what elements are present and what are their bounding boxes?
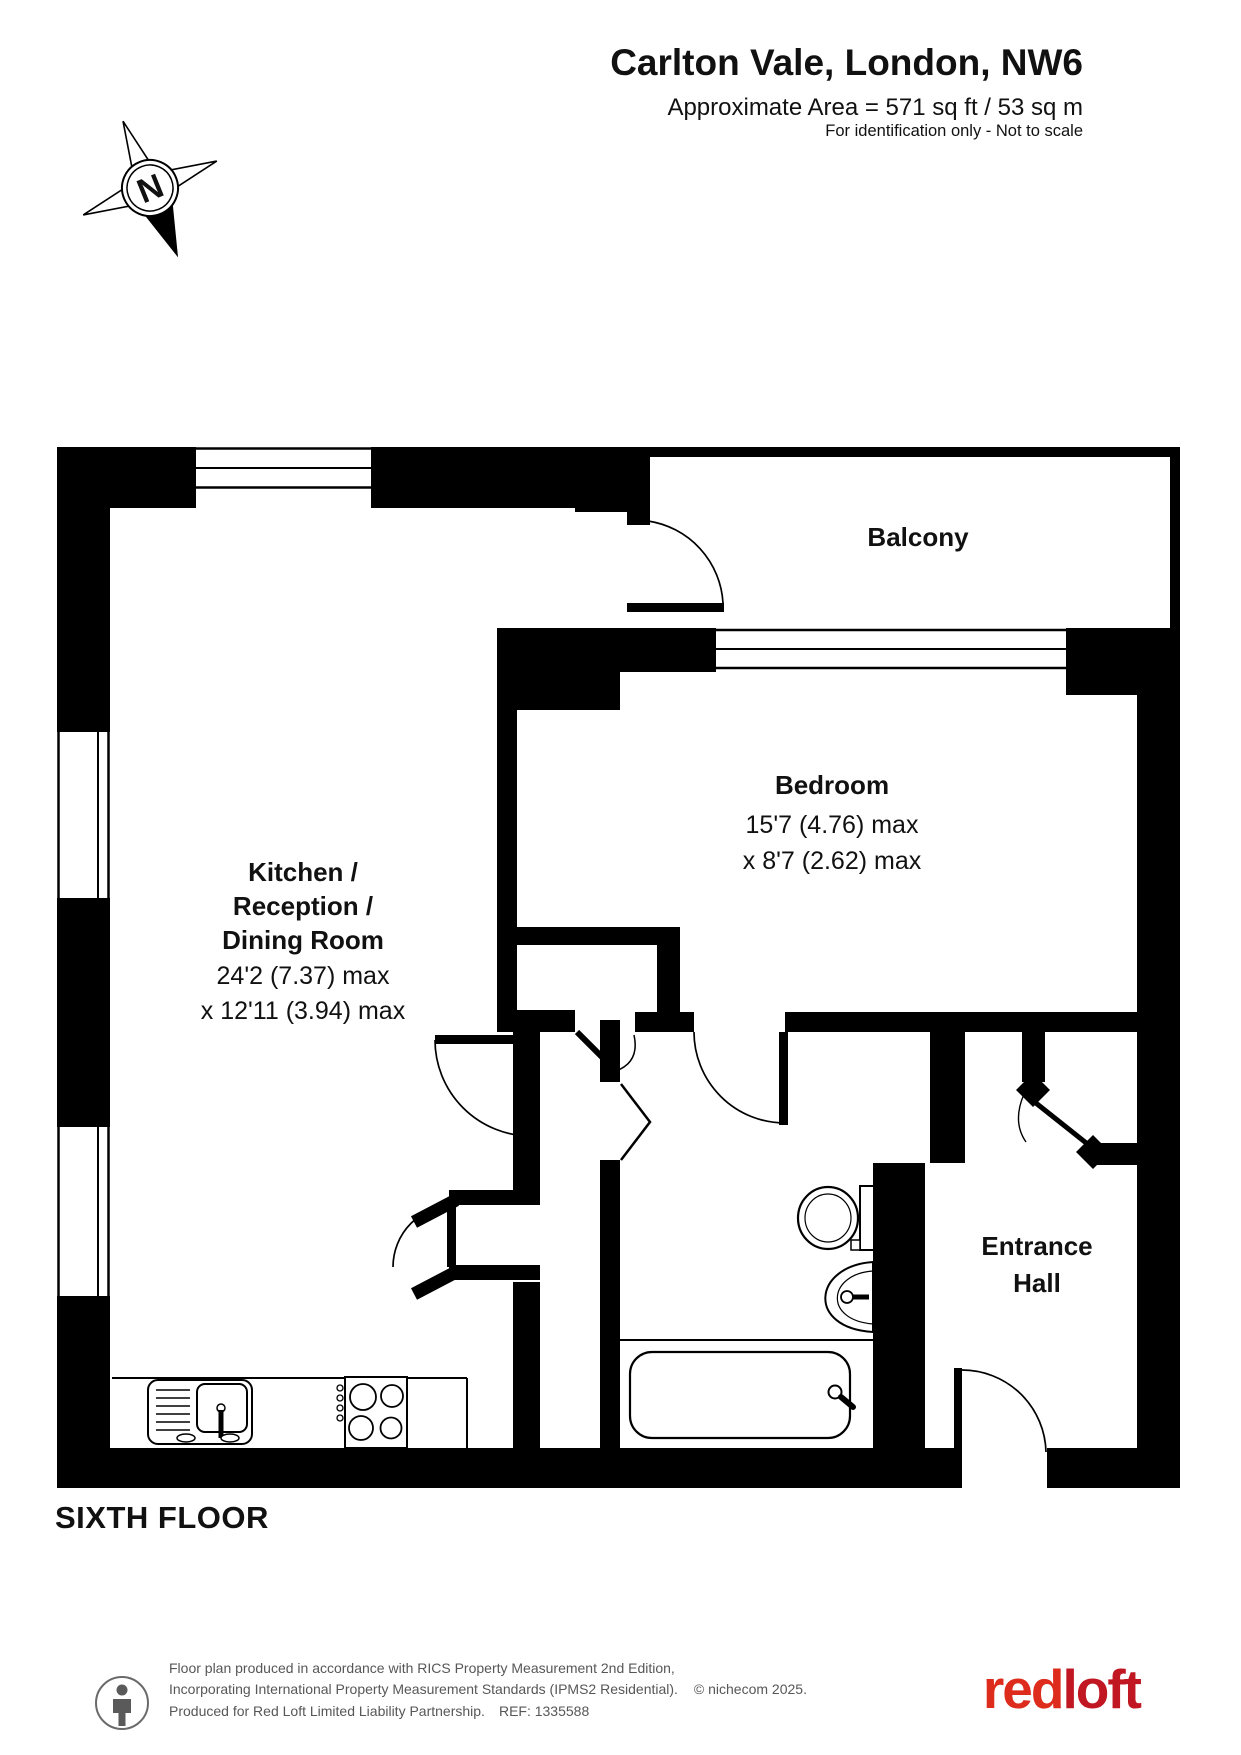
floor-name-label: SIXTH FLOOR	[55, 1500, 269, 1536]
wash-basin	[825, 1262, 873, 1332]
bedroom-dimension-1: 15'7 (4.76) max	[746, 811, 919, 839]
entrance-door	[954, 1368, 1046, 1452]
floor-plan: N	[0, 0, 1241, 1755]
footer-line-3: Produced for Red Loft Limited Liability …	[169, 1701, 807, 1722]
balcony-label: Balcony	[867, 522, 969, 552]
window-left-upper	[57, 730, 110, 900]
window-bedroom-balcony	[716, 628, 1066, 672]
entrance-hall-label-line2: Hall	[1013, 1268, 1061, 1298]
hob	[337, 1377, 407, 1448]
kitchen-dimension-2: x 12'11 (3.94) max	[201, 997, 406, 1025]
window-top	[196, 447, 371, 508]
footer-line-1: Floor plan produced in accordance with R…	[169, 1658, 807, 1679]
balcony-door	[627, 521, 724, 612]
footer-disclaimer: Floor plan produced in accordance with R…	[169, 1658, 807, 1722]
kitchen-label-line1: Kitchen /	[248, 857, 358, 887]
bathtub	[620, 1340, 873, 1438]
kitchen-sink	[148, 1380, 252, 1444]
redloft-logo: redloft	[983, 1657, 1140, 1721]
compass-north-arrow: N	[56, 94, 243, 281]
person-icon	[94, 1674, 152, 1734]
bedroom-label: Bedroom	[775, 770, 889, 800]
footer-line-2: Incorporating International Property Mea…	[169, 1679, 807, 1700]
fixtures	[112, 1186, 874, 1448]
bedroom-dimension-2: x 8'7 (2.62) max	[743, 847, 922, 875]
kitchen-dimension-1: 24'2 (7.37) max	[217, 962, 390, 990]
bathroom-door	[694, 1032, 788, 1125]
logo-loft: loft	[1062, 1658, 1140, 1720]
reference-number: REF: 1335588	[499, 1703, 589, 1719]
kitchen-label-line2: Reception /	[233, 891, 373, 921]
logo-red: red	[983, 1658, 1063, 1720]
copyright: © nichecom 2025.	[694, 1681, 807, 1697]
entrance-hall-label-line1: Entrance	[981, 1231, 1092, 1261]
toilet	[798, 1186, 874, 1250]
cupboard-door	[1018, 1092, 1090, 1146]
kitchen-label-line3: Dining Room	[222, 925, 384, 955]
bifold-door	[621, 1084, 650, 1160]
window-left-lower	[57, 1125, 110, 1298]
